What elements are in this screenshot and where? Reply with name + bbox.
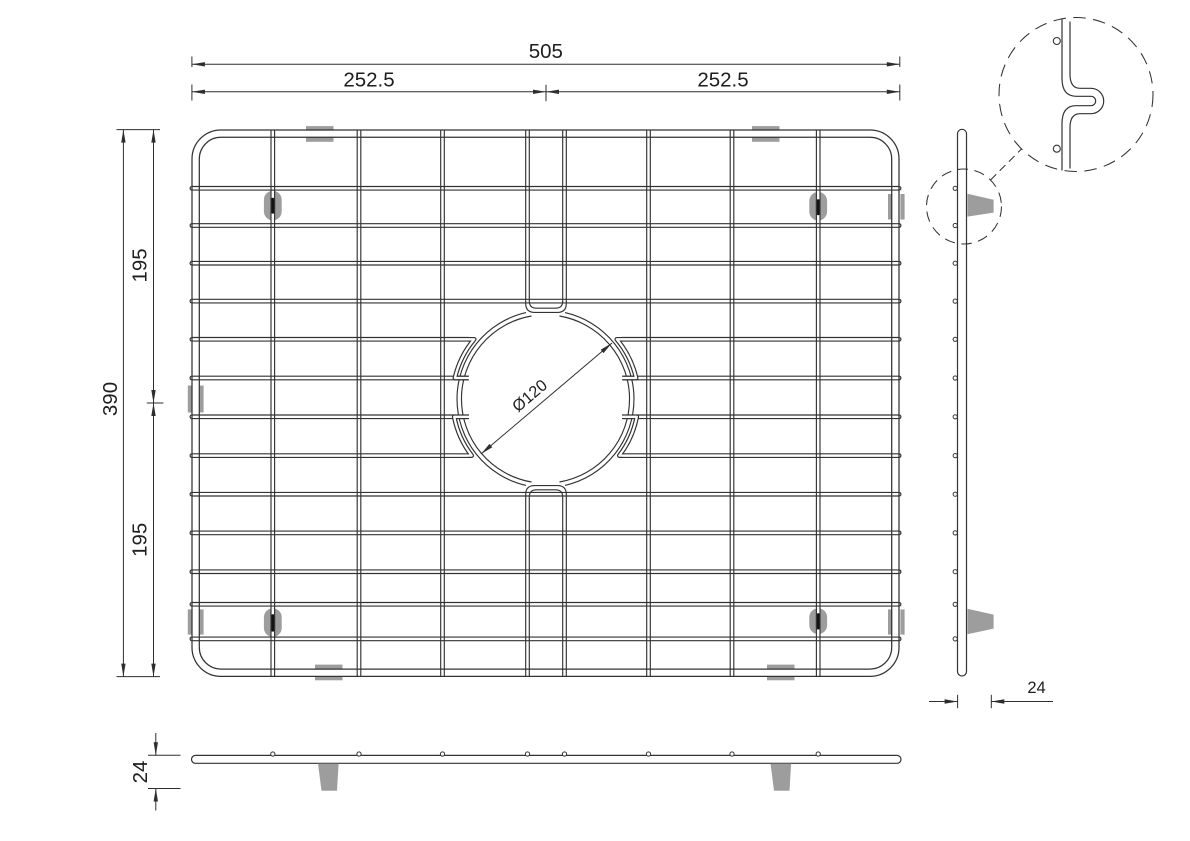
svg-text:252.5: 252.5 [343,68,394,91]
svg-text:195: 195 [129,248,152,282]
svg-text:390: 390 [99,382,122,416]
svg-text:Ø120: Ø120 [509,376,551,415]
svg-text:505: 505 [529,40,563,63]
svg-text:24: 24 [1027,679,1045,697]
svg-text:252.5: 252.5 [697,68,748,91]
svg-text:195: 195 [129,523,152,557]
svg-text:24: 24 [129,761,152,784]
